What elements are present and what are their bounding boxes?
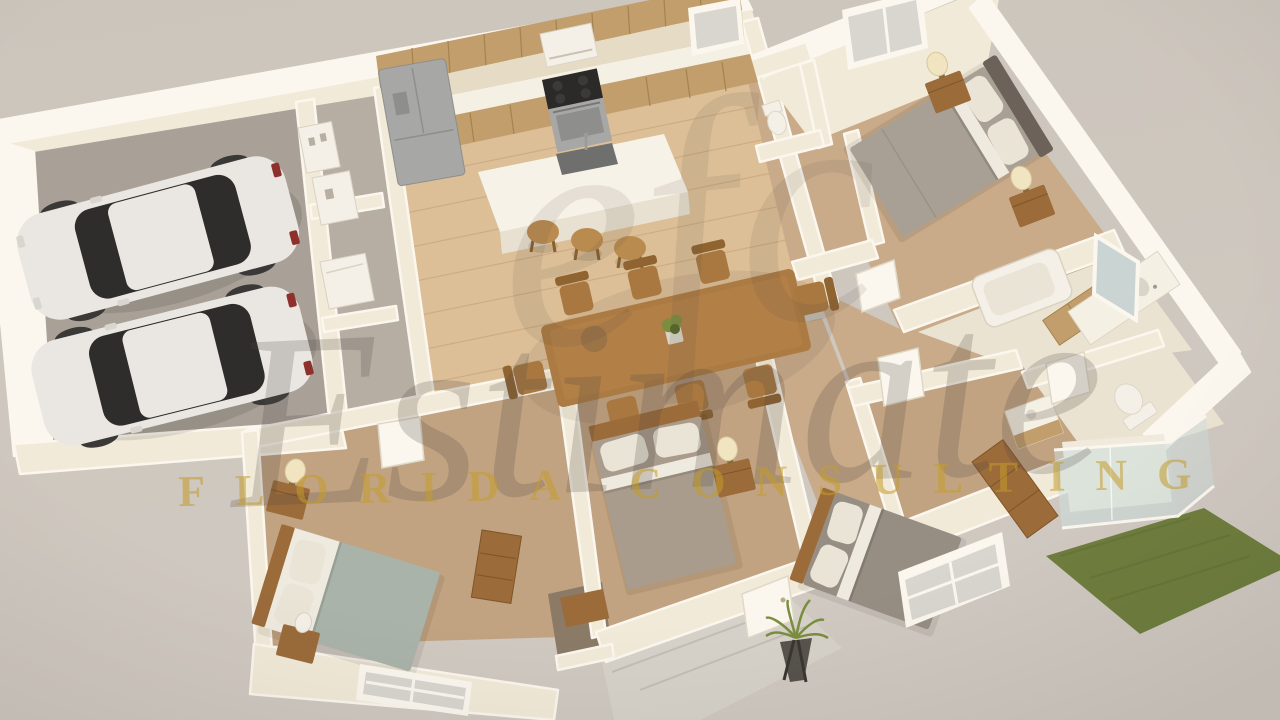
floor-plan-render: efc Estimate FLORIDA CONSULTING: [0, 0, 1280, 720]
floor-plan-canvas: efc Estimate FLORIDA CONSULTING: [0, 0, 1280, 720]
vignette-overlay: [0, 0, 1280, 720]
